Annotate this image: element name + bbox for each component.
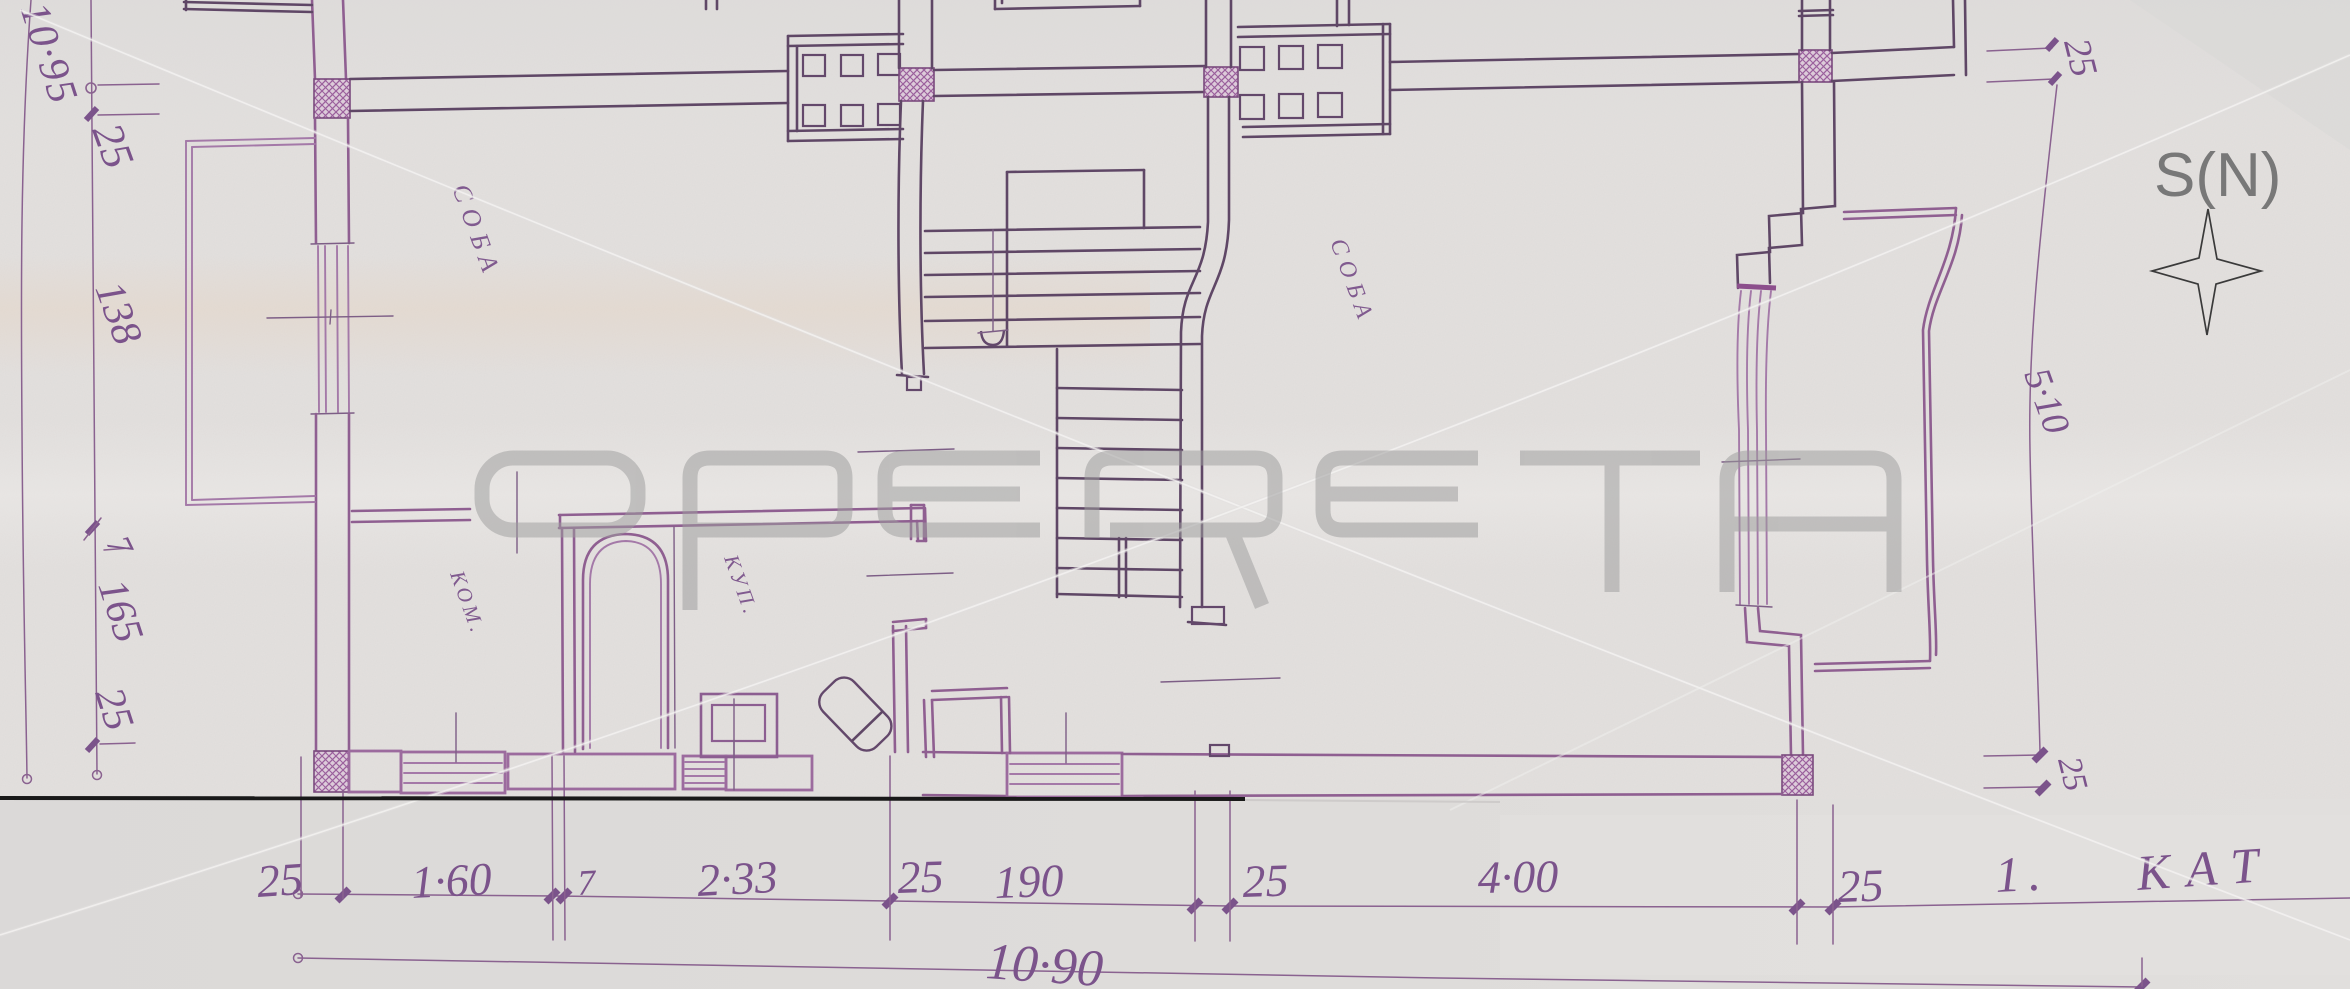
svg-text:S(N): S(N)	[2154, 141, 2281, 210]
svg-text:1.: 1.	[1994, 844, 2050, 903]
svg-text:KAT: KAT	[2134, 835, 2276, 901]
svg-text:190: 190	[994, 855, 1065, 908]
svg-text:25: 25	[897, 850, 945, 903]
svg-text:1·60: 1·60	[410, 853, 493, 908]
svg-text:25: 25	[1242, 854, 1290, 907]
svg-text:10·90: 10·90	[984, 933, 1105, 989]
svg-text:4·00: 4·00	[1477, 851, 1558, 903]
svg-text:2·33: 2·33	[696, 851, 779, 906]
svg-text:25: 25	[1837, 859, 1885, 912]
svg-text:25: 25	[255, 853, 304, 907]
